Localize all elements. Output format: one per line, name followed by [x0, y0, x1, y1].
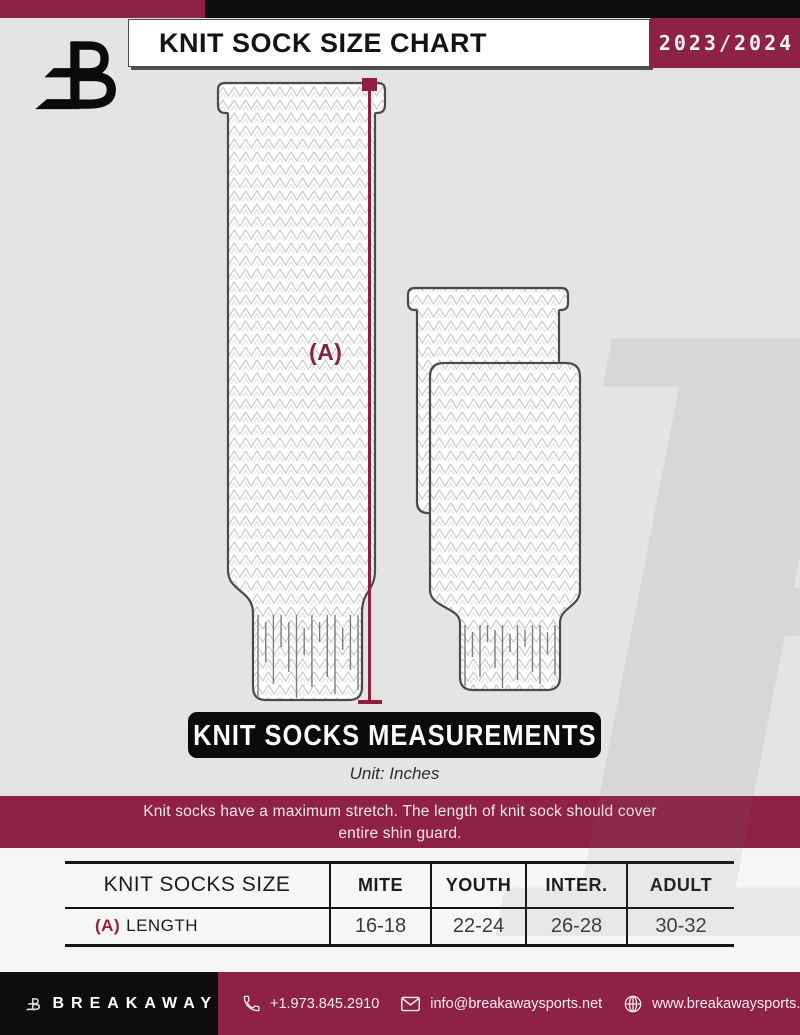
globe-icon	[623, 994, 643, 1014]
note-line-1: Knit socks have a maximum stretch. The l…	[0, 801, 800, 823]
title-bar: KNIT SOCK SIZE CHART	[128, 19, 650, 67]
value-mite: 16-18	[330, 908, 431, 946]
adult-sock-shape	[218, 83, 385, 700]
website-url: www.breakawaysports.net	[652, 996, 800, 1012]
value-inter: 26-28	[526, 908, 627, 946]
row-label: LENGTH	[126, 916, 198, 935]
breakaway-b-logo-icon	[26, 26, 118, 122]
top-strip-maroon	[0, 0, 205, 18]
footer-contact-block: +1.973.845.2910 info@breakawaysports.net	[218, 972, 800, 1035]
footer-brand-name: BREAKAWAY	[52, 995, 218, 1013]
season-label: 2023/2024	[656, 31, 794, 55]
col-header-size: KNIT SOCKS SIZE	[65, 863, 330, 908]
phone-number: +1.973.845.2910	[270, 996, 379, 1012]
measure-label-a: (A)	[309, 339, 342, 366]
col-header-youth: YOUTH	[431, 863, 526, 908]
table-row-length: (A)LENGTH 16-18 22-24 26-28 30-32	[65, 908, 734, 946]
b-logo-icon	[26, 26, 118, 122]
email-address: info@breakawaysports.net	[430, 996, 602, 1012]
note-line-2: entire shin guard.	[0, 823, 800, 845]
col-header-adult: ADULT	[627, 863, 734, 908]
phone-link[interactable]: +1.973.845.2910	[242, 994, 379, 1013]
front-sock-shape	[430, 363, 580, 690]
email-link[interactable]: info@breakawaysports.net	[400, 995, 602, 1013]
sock-diagram	[200, 72, 600, 717]
top-strip-black	[205, 0, 800, 18]
measurements-banner-title: KNIT SOCKS MEASUREMENTS	[193, 718, 596, 753]
measurements-banner: KNIT SOCKS MEASUREMENTS	[188, 712, 601, 758]
season-badge: 2023/2024	[650, 18, 800, 68]
footer: BREAKAWAY +1.973.845.2910 info@breakaway…	[0, 972, 800, 1035]
footer-b-logo-icon	[24, 987, 40, 1021]
stretch-note-banner: Knit socks have a maximum stretch. The l…	[0, 796, 800, 848]
size-table: KNIT SOCKS SIZE MITE YOUTH INTER. ADULT …	[65, 861, 734, 947]
page-title: KNIT SOCK SIZE CHART	[129, 28, 487, 59]
value-adult: 30-32	[627, 908, 734, 946]
value-youth: 22-24	[431, 908, 526, 946]
unit-label: Unit: Inches	[188, 764, 601, 784]
phone-icon	[242, 994, 261, 1013]
website-link[interactable]: www.breakawaysports.net	[623, 994, 800, 1014]
row-label-cell: (A)LENGTH	[65, 908, 330, 946]
footer-brand-block: BREAKAWAY	[0, 972, 218, 1035]
knit-sock-size-chart-page: B KNIT SOCK SIZE CHART 2023/2024	[0, 0, 800, 1035]
size-table-header-row: KNIT SOCKS SIZE MITE YOUTH INTER. ADULT	[65, 863, 734, 908]
col-header-mite: MITE	[330, 863, 431, 908]
col-header-inter: INTER.	[526, 863, 627, 908]
envelope-icon	[400, 995, 421, 1013]
row-label-prefix: (A)	[95, 916, 120, 935]
